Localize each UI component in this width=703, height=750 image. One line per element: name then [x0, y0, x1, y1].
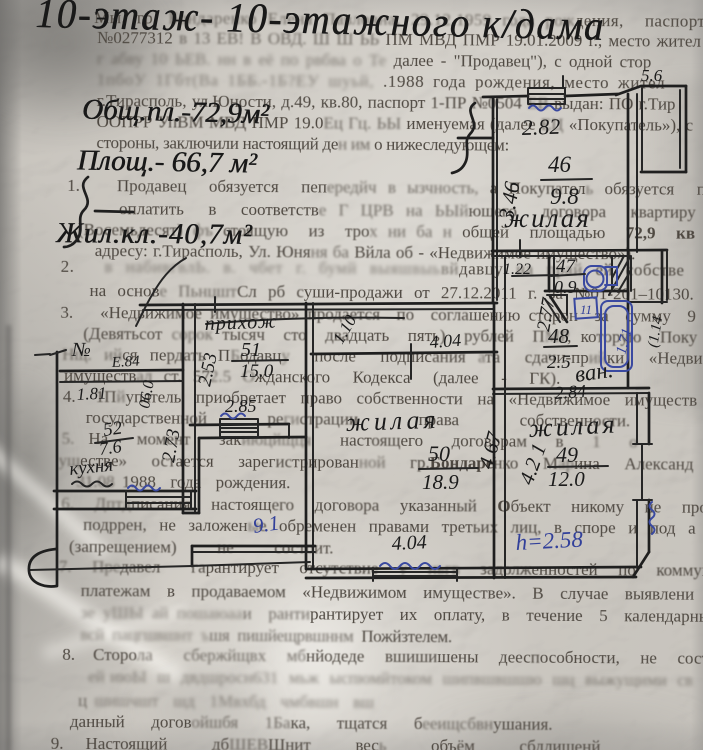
- svg-text:2.53: 2.53: [194, 351, 221, 388]
- svg-text:жилая: жилая: [345, 405, 440, 437]
- svg-text:18.9: 18.9: [422, 470, 459, 494]
- svg-text:11: 11: [580, 302, 592, 317]
- svg-text:15.0: 15.0: [240, 361, 274, 382]
- svg-text:4.2 1: 4.2 1: [514, 440, 551, 488]
- svg-text:0.9: 0.9: [554, 277, 577, 297]
- svg-text:4.04: 4.04: [391, 531, 427, 555]
- svg-text:жилая: жилая: [528, 409, 618, 443]
- svg-text:51: 51: [241, 339, 261, 361]
- svg-text:5.6: 5.6: [641, 66, 663, 85]
- svg-text:46: 46: [548, 152, 572, 177]
- svg-text:2.82: 2.82: [521, 114, 560, 140]
- svg-text:№: №: [71, 339, 91, 361]
- svg-text:1.81: 1.81: [76, 383, 107, 404]
- svg-text:49: 49: [556, 442, 578, 467]
- svg-text:06.0: 06.0: [136, 379, 158, 410]
- svg-text:4.67: 4.67: [474, 428, 507, 471]
- svg-text:Е.84: Е.84: [110, 354, 140, 372]
- svg-text:12.0: 12.0: [548, 467, 585, 491]
- svg-text:2.5: 2.5: [547, 352, 571, 373]
- svg-text:48: 48: [548, 324, 570, 348]
- svg-text:9.1: 9.1: [251, 511, 280, 538]
- svg-text:1.10: 1.10: [329, 311, 361, 347]
- svg-text:2.85: 2.85: [225, 396, 257, 416]
- svg-text:(1.14: (1.14: [645, 315, 666, 349]
- svg-text:4.04: 4.04: [429, 330, 462, 352]
- svg-text:кухня: кухня: [68, 455, 114, 480]
- svg-text:2.84: 2.84: [554, 381, 587, 403]
- svg-text:50: 50: [428, 441, 450, 466]
- svg-text:прихож: прихож: [204, 310, 277, 335]
- svg-text:2.73: 2.73: [158, 427, 184, 463]
- svg-text:h=2.58: h=2.58: [515, 526, 584, 555]
